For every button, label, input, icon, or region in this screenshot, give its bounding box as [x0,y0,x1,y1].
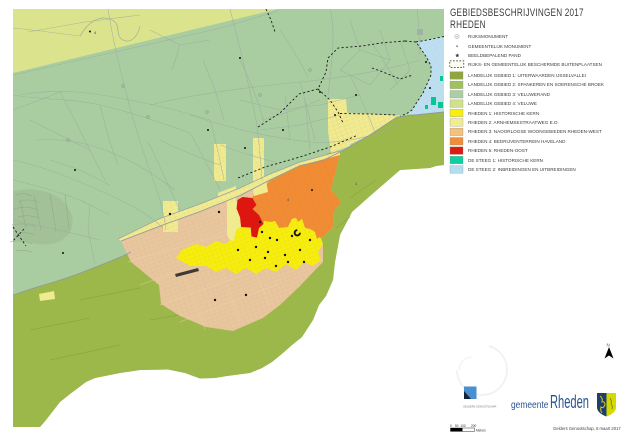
svg-text:0: 0 [450,424,452,428]
svg-text:Rheden: Rheden [550,392,589,412]
svg-text:50: 50 [455,424,459,428]
svg-text:Meters: Meters [476,429,486,433]
svg-text:200: 200 [471,424,477,428]
svg-text:100: 100 [460,424,466,428]
svg-text:N: N [607,343,610,348]
svg-text:gemeente: gemeente [511,400,549,411]
svg-text:GELDERS GENOOTSCHAP: GELDERS GENOOTSCHAP [463,405,497,409]
svg-text:Gelders Genootschap, 8 maart 2: Gelders Genootschap, 8 maart 2017 [553,426,621,431]
